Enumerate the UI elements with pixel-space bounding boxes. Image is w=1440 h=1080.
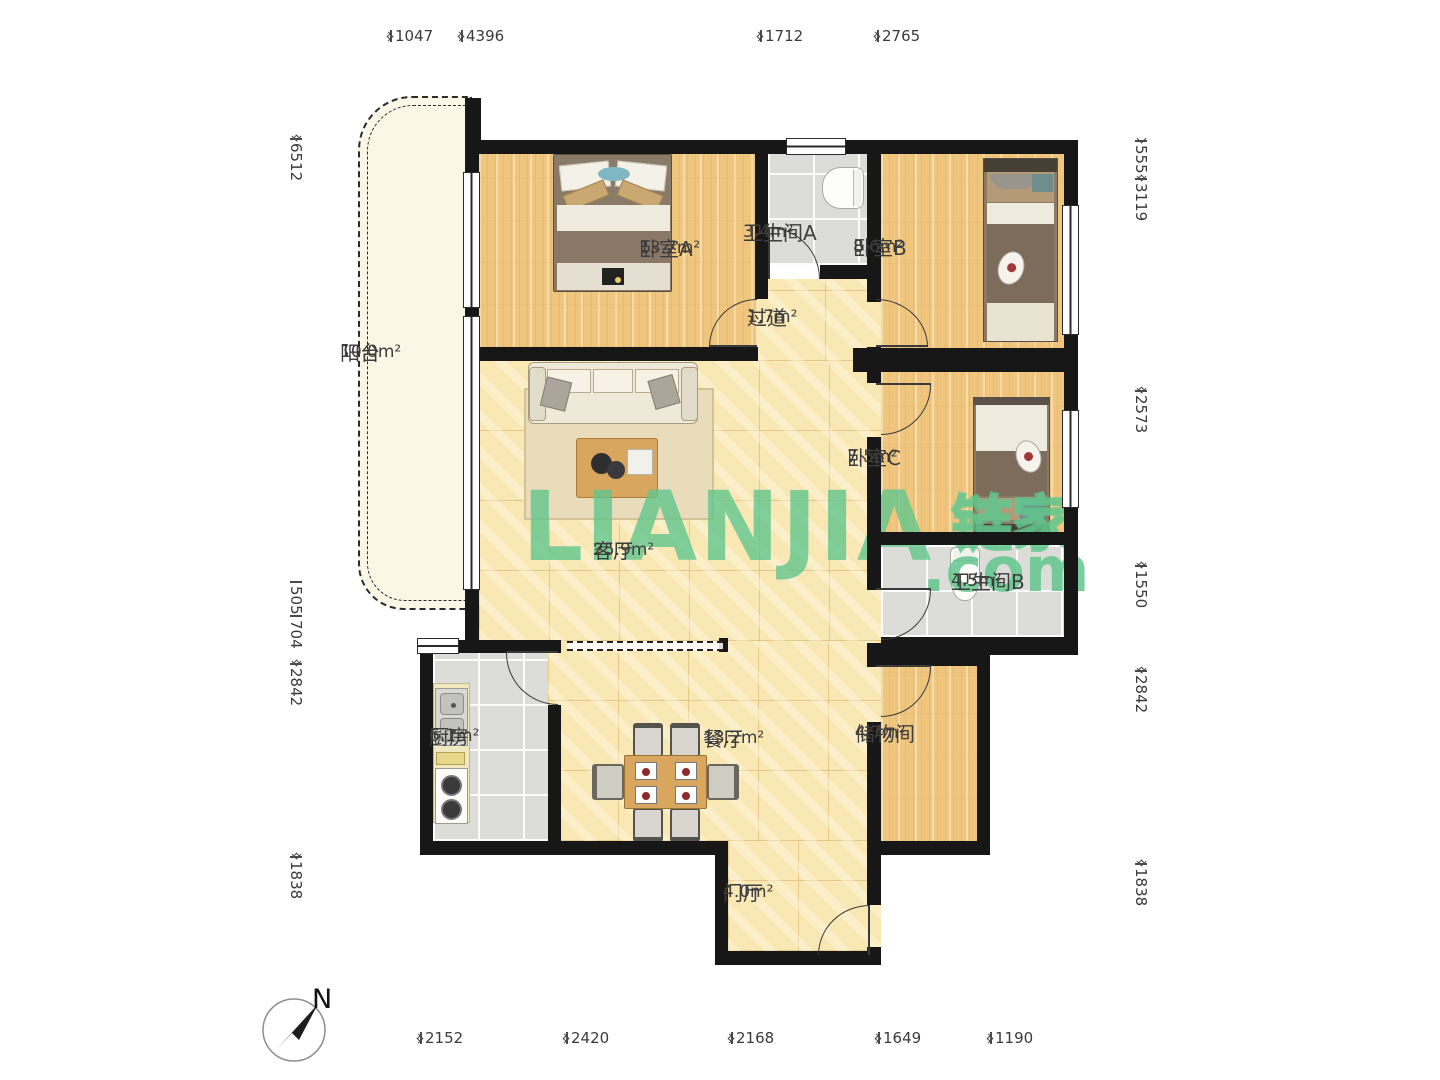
wall-segment: [465, 140, 1078, 154]
dining-chair: [633, 723, 663, 757]
dimension-left: 505: [283, 581, 309, 615]
dining-table: [624, 755, 707, 809]
sink-basin: [440, 693, 464, 715]
wall-segment: [977, 655, 990, 855]
dining-chair: [670, 808, 700, 842]
window: [463, 172, 480, 308]
wall-segment: [755, 265, 768, 279]
dining-chair: [707, 764, 739, 800]
dining-chair: [633, 808, 663, 842]
door-leaf: [876, 345, 928, 347]
sofa: [528, 362, 698, 424]
dimension-top: 1712: [760, 25, 877, 47]
dimension-bottom: 2168: [731, 1027, 878, 1049]
bed-sheet: [976, 405, 1047, 451]
sofa-armrest: [681, 367, 698, 421]
dimension-left: 6512: [283, 138, 309, 581]
dimension-right: 1550: [1128, 565, 1154, 670]
dimension-bottom: 2420: [566, 1027, 731, 1049]
dimension-left: 2842: [283, 663, 309, 856]
kitchen-item-box: [436, 752, 465, 765]
window: [1062, 410, 1079, 508]
bed-top-rail: [974, 398, 1049, 405]
toilet: [822, 167, 864, 209]
door-leaf: [876, 588, 931, 590]
stove-burner: [441, 799, 462, 820]
dimension-top: 2765: [877, 25, 1065, 47]
kitchen-stove: [435, 768, 468, 824]
cushion: [1032, 174, 1053, 192]
wall-opening-dashed: [567, 641, 723, 651]
place-setting: [675, 762, 697, 780]
bed-tray: [602, 268, 624, 285]
single-bed: [983, 158, 1058, 342]
wall-segment: [820, 265, 867, 279]
dimension-bottom: 1649: [878, 1027, 990, 1049]
pillow: [990, 174, 1038, 189]
wall-segment: [867, 643, 881, 667]
place-setting: [635, 762, 657, 780]
dimension-top: 1047: [390, 25, 461, 47]
place-setting: [635, 786, 657, 804]
stove-burner: [441, 775, 462, 796]
door-leaf: [709, 345, 757, 347]
wall-segment: [881, 532, 1064, 545]
floor-plan: LIANJIA 链家 .com: [0, 0, 1440, 1080]
door-leaf: [506, 651, 558, 653]
dimension-right: 2842: [1128, 670, 1154, 863]
window: [417, 638, 459, 654]
dimension-bottom: 1190: [990, 1027, 1071, 1049]
dimension-right: 2573: [1128, 390, 1154, 565]
double-bed: [553, 154, 672, 292]
place-setting: [675, 786, 697, 804]
bed-sheet: [987, 203, 1054, 224]
sofa-pillow: [540, 376, 572, 411]
dimension-right: 1838: [1128, 863, 1154, 988]
bed-foot-band: [987, 303, 1054, 341]
dimension-left: 1838: [283, 856, 309, 981]
dimension-right: 3119: [1128, 178, 1154, 390]
wall-segment: [465, 347, 758, 361]
door-leaf: [876, 383, 931, 385]
window: [786, 138, 846, 155]
sofa-cushion: [593, 369, 633, 393]
wall-segment: [853, 348, 1064, 372]
wall-segment: [867, 140, 881, 302]
window: [1062, 205, 1079, 335]
north-label: N: [312, 984, 332, 1015]
wall-segment: [420, 841, 728, 855]
door-leaf: [876, 665, 931, 667]
window: [463, 316, 480, 590]
dimension-bottom: 2152: [420, 1027, 566, 1049]
dining-chair: [592, 764, 624, 800]
dimension-top: 4396: [461, 25, 760, 47]
wall-segment: [867, 841, 881, 905]
door-leaf: [868, 905, 870, 955]
dining-chair: [670, 723, 700, 757]
north-compass: N: [252, 980, 352, 1070]
wall-segment: [867, 841, 990, 855]
headboard: [984, 159, 1057, 172]
bed-sheet: [557, 205, 670, 231]
wall-segment: [548, 705, 561, 841]
